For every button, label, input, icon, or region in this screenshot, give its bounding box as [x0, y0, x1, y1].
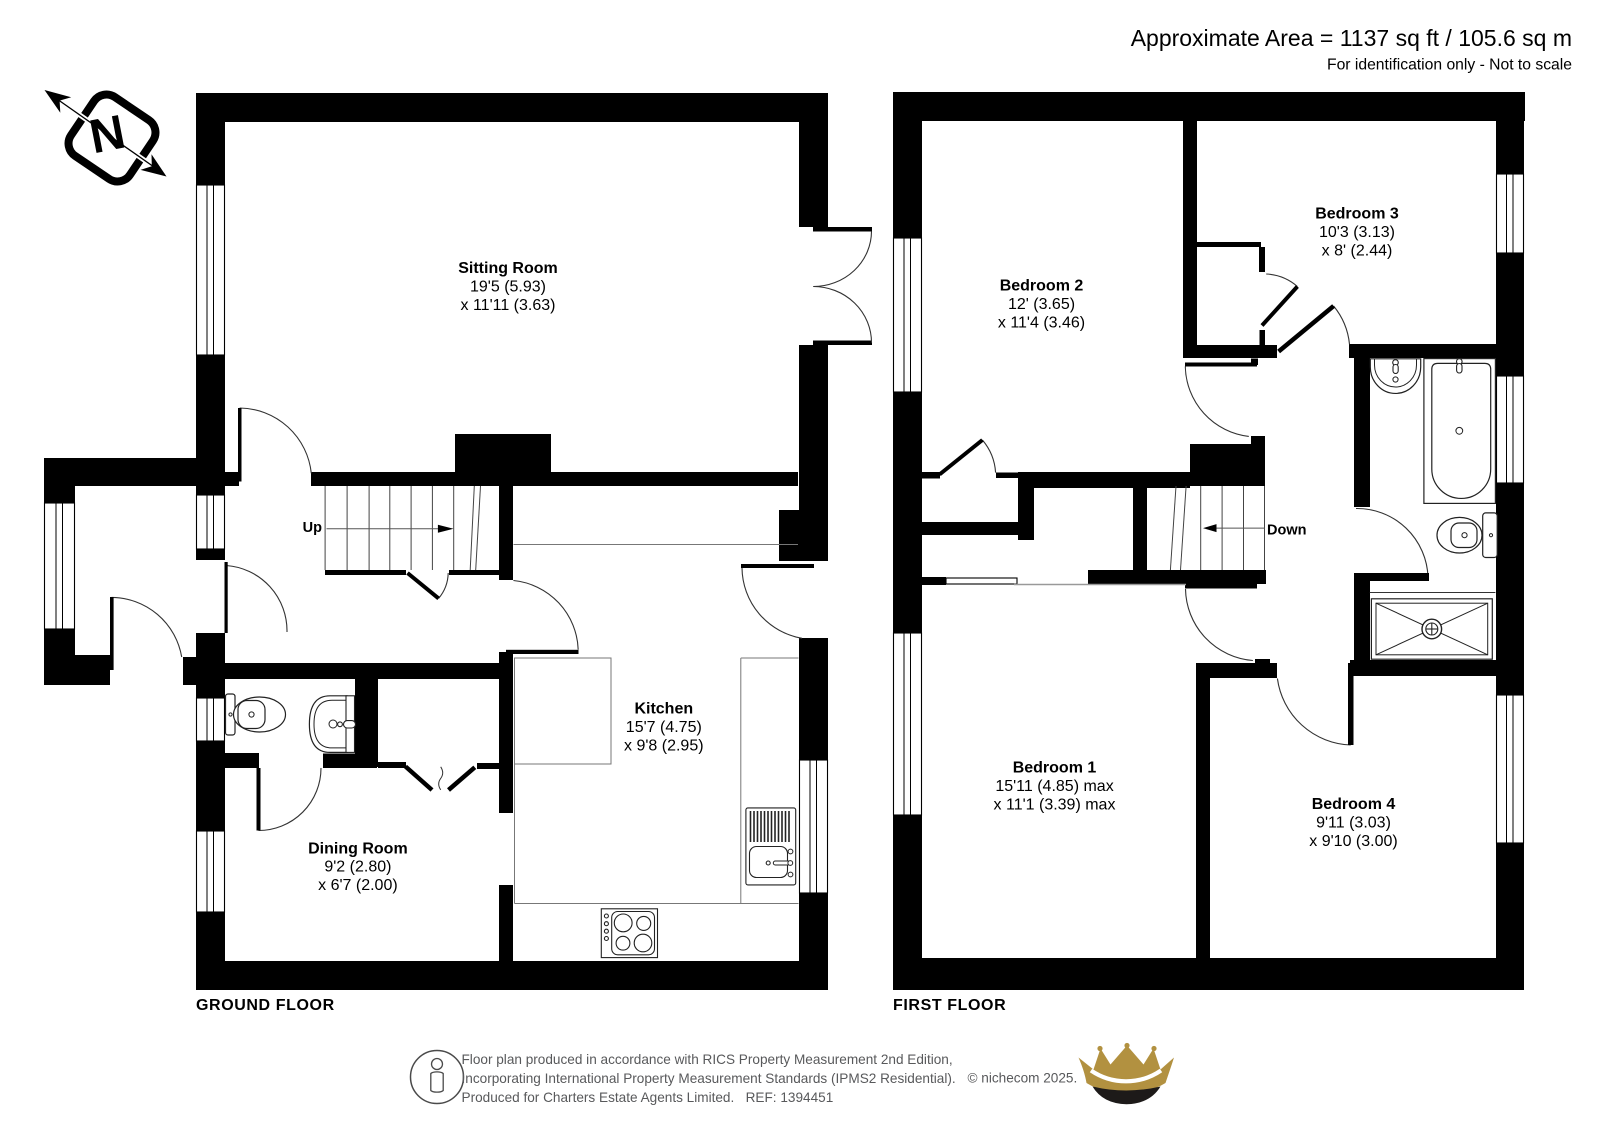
- svg-text:Approximate Area = 1137 sq ft: Approximate Area = 1137 sq ft / 105.6 sq…: [1131, 25, 1572, 51]
- svg-text:For identification only - Not: For identification only - Not to scale: [1327, 57, 1572, 74]
- svg-text:Bedroom 4: Bedroom 4: [1312, 796, 1396, 813]
- svg-text:Bedroom 2: Bedroom 2: [1000, 278, 1084, 295]
- svg-text:Produced for Charters Estate A: Produced for Charters Estate Agents Limi…: [462, 1090, 834, 1105]
- svg-text:Bedroom 3: Bedroom 3: [1315, 206, 1399, 223]
- svg-text:Incorporating International Pr: Incorporating International Property Mea…: [462, 1071, 956, 1086]
- svg-text:x 6'7 (2.00): x 6'7 (2.00): [318, 877, 398, 894]
- svg-text:15'11 (4.85) max: 15'11 (4.85) max: [995, 778, 1113, 795]
- svg-text:x 11'4 (3.46): x 11'4 (3.46): [998, 314, 1085, 331]
- svg-text:FIRST FLOOR: FIRST FLOOR: [893, 997, 1006, 1014]
- svg-text:9'2 (2.80): 9'2 (2.80): [324, 859, 391, 876]
- svg-text:Up: Up: [303, 520, 322, 536]
- svg-text:x 11'1 (3.39) max: x 11'1 (3.39) max: [994, 796, 1116, 813]
- svg-text:Floor plan produced in accorda: Floor plan produced in accordance with R…: [462, 1052, 953, 1067]
- svg-text:9'11 (3.03): 9'11 (3.03): [1316, 815, 1391, 832]
- svg-text:x 9'10 (3.00): x 9'10 (3.00): [1309, 833, 1397, 850]
- svg-text:10'3 (3.13): 10'3 (3.13): [1319, 224, 1395, 241]
- svg-text:© nichecom 2025.: © nichecom 2025.: [968, 1071, 1078, 1086]
- svg-text:Down: Down: [1267, 523, 1306, 539]
- svg-text:Kitchen: Kitchen: [634, 701, 693, 718]
- svg-text:19'5 (5.93): 19'5 (5.93): [470, 278, 546, 295]
- svg-text:GROUND FLOOR: GROUND FLOOR: [196, 997, 335, 1014]
- svg-text:15'7 (4.75): 15'7 (4.75): [626, 719, 702, 736]
- svg-text:Bedroom 1: Bedroom 1: [1013, 760, 1097, 777]
- svg-text:Dining Room: Dining Room: [308, 840, 408, 857]
- svg-text:x 8' (2.44): x 8' (2.44): [1322, 242, 1393, 259]
- svg-text:x 9'8 (2.95): x 9'8 (2.95): [624, 738, 704, 755]
- svg-text:Sitting Room: Sitting Room: [458, 260, 558, 277]
- svg-text:12' (3.65): 12' (3.65): [1008, 296, 1075, 313]
- svg-text:x 11'11 (3.63): x 11'11 (3.63): [461, 297, 556, 314]
